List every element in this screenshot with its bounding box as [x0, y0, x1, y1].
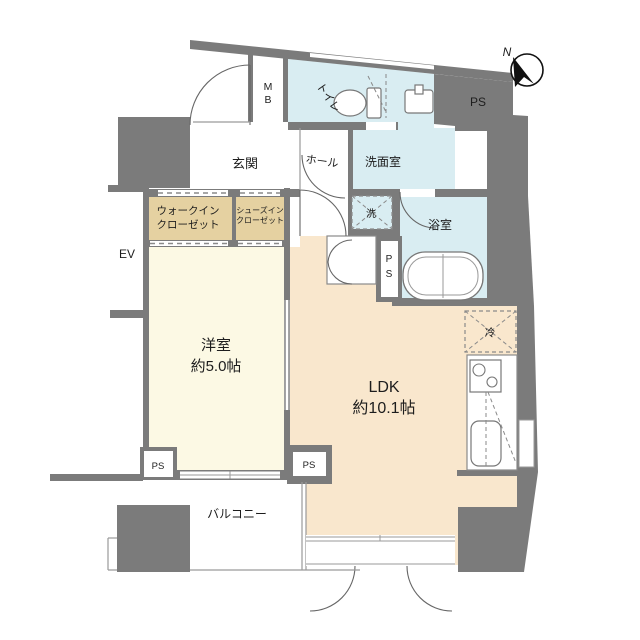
- floor-plan-canvas: N 玄関 ホール トイレ 洗面室 浴室 洗 冷 ウォークイン クローゼット シュ…: [0, 0, 640, 640]
- room-walk-in-closet: [145, 192, 232, 243]
- label-fridge: 冷: [485, 326, 496, 339]
- label-bedroom-size: 約5.0帖: [191, 358, 242, 375]
- label-bathroom: 浴室: [428, 217, 452, 232]
- opening-toilet-washroom: [366, 122, 396, 130]
- wall-closet-east: [284, 188, 290, 247]
- window-ldk-south: [306, 535, 455, 566]
- wall-left-stub: [110, 310, 145, 318]
- wall-entry-pillar: [118, 117, 190, 188]
- label-ldk: LDK: [368, 379, 399, 396]
- label-sic-2: クローゼット: [236, 215, 284, 225]
- label-entrance: 玄関: [232, 156, 258, 171]
- label-washroom: 洗面室: [365, 154, 401, 169]
- label-ldk-size: 約10.1帖: [352, 399, 415, 417]
- label-ps-balcony: PS: [303, 460, 316, 471]
- label-ps-topright: PS: [470, 95, 486, 109]
- wall-right-upper: [487, 196, 534, 306]
- label-sic-1: シューズイン: [236, 205, 284, 215]
- wall-balcony-pillar-top: [117, 505, 190, 572]
- label-bedroom: 洋室: [201, 337, 231, 354]
- label-ps-s: S: [386, 269, 393, 280]
- label-elevator: EV: [119, 247, 135, 261]
- window-kitchen-east: [519, 420, 534, 467]
- wall-kitchen-south: [457, 470, 517, 476]
- label-mb-m: M: [264, 81, 273, 93]
- label-wic-2: クローゼット: [157, 219, 220, 231]
- label-mb-b: B: [264, 94, 271, 106]
- north-label: N: [503, 45, 512, 59]
- stove-icon: [470, 360, 501, 392]
- floor-plan: N 玄関 ホール トイレ 洗面室 浴室 洗 冷 ウォークイン クローゼット シュ…: [0, 0, 640, 640]
- label-balcony: バルコニー: [207, 507, 267, 521]
- label-ps-left: PS: [152, 461, 165, 472]
- room-hall: [300, 128, 348, 236]
- label-ps-p: P: [386, 254, 393, 265]
- bathtub-icon: [403, 252, 483, 300]
- wall-neighbor-bar: [50, 474, 143, 481]
- label-washer: 洗: [366, 208, 376, 220]
- entry-porch: [193, 49, 250, 122]
- opening-bathroom-door: [400, 189, 435, 197]
- wall-entry-stub: [108, 185, 148, 192]
- wall-mb-right: [283, 57, 288, 122]
- wall-left: [143, 188, 149, 480]
- label-wic-1: ウォークイン: [157, 205, 220, 217]
